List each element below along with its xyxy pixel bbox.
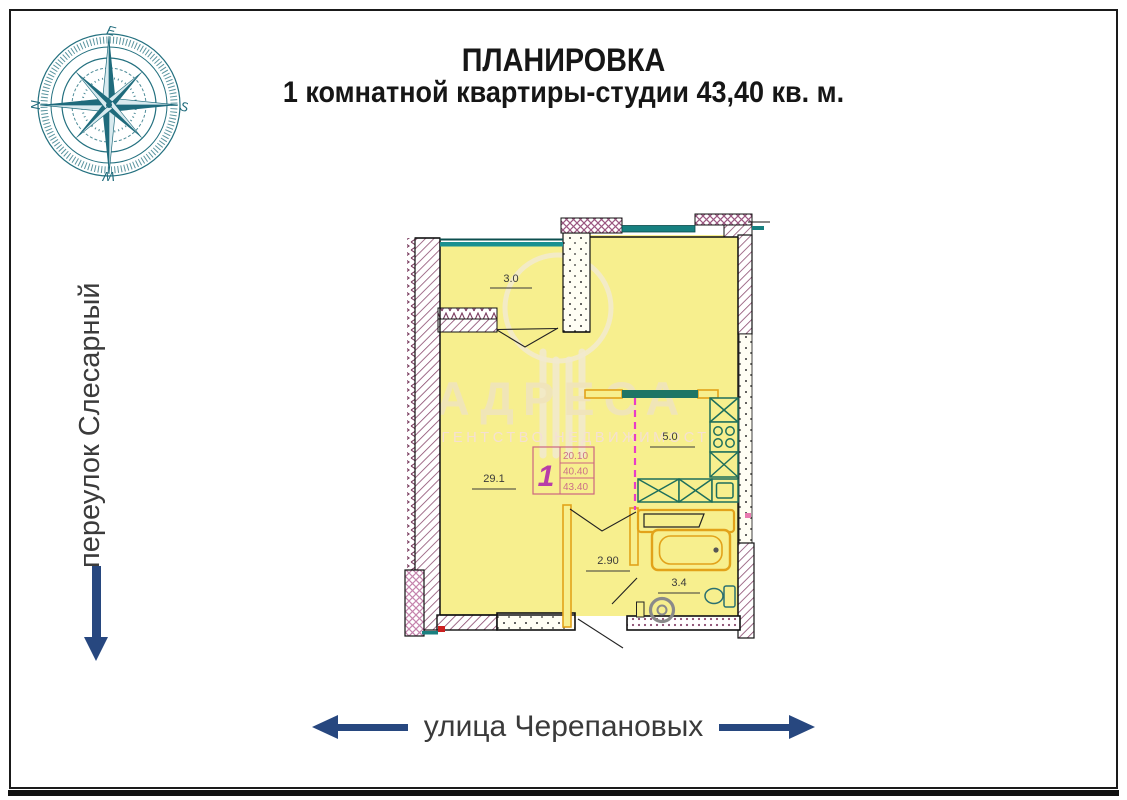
stamp-value-2: 40.40	[563, 467, 588, 478]
red-mark	[438, 626, 445, 632]
compass-letter-north: N	[30, 100, 43, 110]
title-line-2: 1 комнатной квартиры-студии 43,40 кв. м.	[56, 76, 1070, 111]
title-line-1: ПЛАНИРОВКА	[56, 44, 1070, 76]
balcony-area: 3.0	[503, 273, 518, 285]
street-label-left: переулок Слесарный	[74, 286, 107, 568]
page-title: ПЛАНИРОВКА 1 комнатной квартиры-студии 4…	[56, 44, 1070, 111]
pink-mark	[745, 513, 751, 518]
watermark-subtitle: АГЕНТСТВО НЕДВИЖИМОСТИ	[428, 430, 724, 446]
stamp-value-3: 43.40	[563, 482, 588, 493]
compass-letter-west: W	[101, 169, 115, 184]
stove-icon	[710, 422, 738, 452]
kitchen-partition-teal	[622, 390, 698, 398]
bathroom-area: 3.4	[671, 577, 686, 589]
bath-shelf	[638, 510, 734, 532]
bottom-black-bar	[8, 790, 1119, 796]
living-area: 29.1	[483, 473, 504, 485]
down-arrow-icon	[84, 637, 108, 661]
down-arrow-shaft	[92, 566, 101, 638]
floor-plan-drawing: АДРЕСА АГЕНТСТВО НЕДВИЖИМОСТИ	[402, 202, 772, 662]
left-arrow-icon	[312, 715, 408, 739]
hallway-area: 2.90	[597, 555, 618, 567]
toilet-icon	[724, 586, 735, 607]
floor-plan-poster: E S W N ПЛАНИРОВКА 1 комнатной квартиры-…	[0, 0, 1127, 800]
kitchen-area: 5.0	[662, 431, 677, 443]
street-label-bottom-row: улица Черепановых	[0, 710, 1127, 744]
watermark-brand: АДРЕСА	[436, 372, 689, 425]
street-label-bottom: улица Черепановых	[424, 710, 704, 744]
compass-letter-east: E	[105, 26, 117, 39]
right-arrow-icon	[719, 715, 815, 739]
stamp-room-count: 1	[538, 460, 555, 493]
stamp-value-1: 20.10	[563, 451, 588, 462]
